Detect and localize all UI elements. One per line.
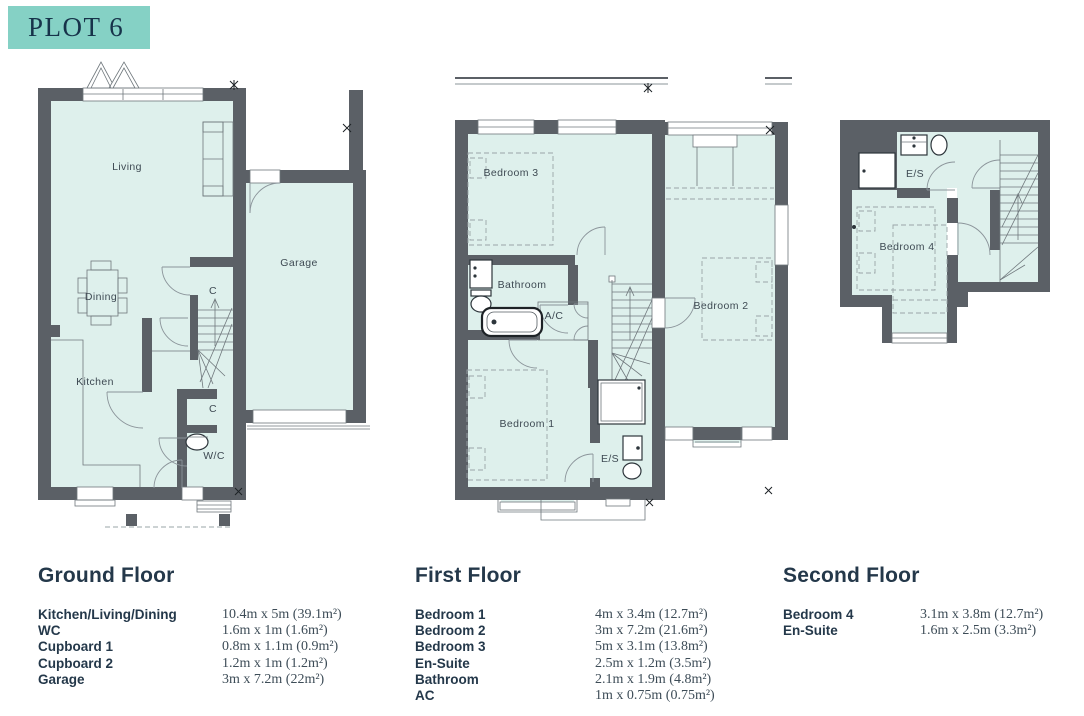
room-dimensions: 1.6m x 2.5m (3.3m²) xyxy=(920,623,1036,639)
room-name: Kitchen/Living/Dining xyxy=(38,607,222,623)
second-floor-title: Second Floor xyxy=(783,564,1043,588)
table-row: Garage3m x 7.2m (22m²) xyxy=(38,672,342,688)
label-bathroom: Bathroom xyxy=(498,279,547,291)
label-bedroom2: Bedroom 2 xyxy=(694,300,749,312)
table-row: En-Suite2.5m x 1.2m (3.5m²) xyxy=(415,656,715,672)
table-row: Bedroom 23m x 7.2m (21.6m²) xyxy=(415,623,715,639)
plot-title: PLOT 6 xyxy=(8,12,124,43)
room-dimensions: 4m x 3.4m (12.7m²) xyxy=(595,607,708,623)
label-living: Living xyxy=(112,161,142,173)
label-garage: Garage xyxy=(280,257,317,269)
table-row: Kitchen/Living/Dining10.4m x 5m (39.1m²) xyxy=(38,607,342,623)
room-name: Bedroom 3 xyxy=(415,639,595,655)
label-ensuite-first: E/S xyxy=(601,453,619,465)
label-bedroom1: Bedroom 1 xyxy=(500,418,555,430)
table-row: WC1.6m x 1m (1.6m²) xyxy=(38,623,342,639)
room-name: En-Suite xyxy=(783,623,920,639)
floorplan-second: E/S Bedroom 4 xyxy=(835,95,1060,375)
table-row: Bedroom 35m x 3.1m (13.8m²) xyxy=(415,639,715,655)
room-dimensions: 3m x 7.2m (22m²) xyxy=(222,672,324,688)
label-cupboard1: C xyxy=(209,285,217,297)
table-row: Bathroom2.1m x 1.9m (4.8m²) xyxy=(415,672,715,688)
room-name: Bedroom 1 xyxy=(415,607,595,623)
legend-second-floor: Second Floor Bedroom 43.1m x 3.8m (12.7m… xyxy=(783,564,1043,639)
second-floor-table: Bedroom 43.1m x 3.8m (12.7m²) En-Suite1.… xyxy=(783,607,1043,639)
room-name: Garage xyxy=(38,672,222,688)
room-name: Bedroom 4 xyxy=(783,607,920,623)
room-dimensions: 1.6m x 1m (1.6m²) xyxy=(222,623,328,639)
room-dimensions: 0.8m x 1.1m (0.9m²) xyxy=(222,639,338,655)
label-wc: W/C xyxy=(203,450,225,462)
table-row: Cupboard 10.8m x 1.1m (0.9m²) xyxy=(38,639,342,655)
label-dining: Dining xyxy=(85,291,117,303)
label-ac: A/C xyxy=(545,310,564,322)
first-floor-table: Bedroom 14m x 3.4m (12.7m²) Bedroom 23m … xyxy=(415,607,715,704)
room-name: En-Suite xyxy=(415,656,595,672)
room-name: Cupboard 2 xyxy=(38,656,222,672)
room-dimensions: 1m x 0.75m (0.75m²) xyxy=(595,688,715,704)
table-row: Bedroom 14m x 3.4m (12.7m²) xyxy=(415,607,715,623)
legend-ground-floor: Ground Floor Kitchen/Living/Dining10.4m … xyxy=(38,564,342,688)
label-cupboard2: C xyxy=(209,403,217,415)
room-dimensions: 2.5m x 1.2m (3.5m²) xyxy=(595,656,711,672)
floorplan-ground: Living Dining Kitchen C C W/C Garage xyxy=(25,58,375,548)
room-name: Cupboard 1 xyxy=(38,639,222,655)
table-row: Bedroom 43.1m x 3.8m (12.7m²) xyxy=(783,607,1043,623)
floorplan-sheet: PLOT 6 xyxy=(0,0,1084,716)
second-windows xyxy=(892,333,947,343)
room-dimensions: 3m x 7.2m (21.6m²) xyxy=(595,623,708,639)
table-row: Cupboard 21.2m x 1m (1.2m²) xyxy=(38,656,342,672)
floorplan-first: Bedroom 3 Bathroom A/C Bedroom 1 E/S Bed… xyxy=(440,58,800,533)
label-bedroom4: Bedroom 4 xyxy=(880,241,935,253)
room-name: AC xyxy=(415,688,595,704)
table-row: AC1m x 0.75m (0.75m²) xyxy=(415,688,715,704)
room-dimensions: 1.2m x 1m (1.2m²) xyxy=(222,656,328,672)
room-dimensions: 2.1m x 1.9m (4.8m²) xyxy=(595,672,711,688)
plot-title-badge: PLOT 6 xyxy=(8,6,150,49)
label-kitchen: Kitchen xyxy=(76,376,114,388)
label-ensuite-second: E/S xyxy=(906,168,924,180)
room-dimensions: 10.4m x 5m (39.1m²) xyxy=(222,607,342,623)
room-dimensions: 3.1m x 3.8m (12.7m²) xyxy=(920,607,1043,623)
room-name: Bedroom 2 xyxy=(415,623,595,639)
table-row: En-Suite1.6m x 2.5m (3.3m²) xyxy=(783,623,1043,639)
ground-floor-title: Ground Floor xyxy=(38,564,342,588)
first-roofline xyxy=(455,78,792,84)
room-dimensions: 5m x 3.1m (13.8m²) xyxy=(595,639,708,655)
ground-floor-table: Kitchen/Living/Dining10.4m x 5m (39.1m²)… xyxy=(38,607,342,688)
first-floor-title: First Floor xyxy=(415,564,715,588)
legend-first-floor: First Floor Bedroom 14m x 3.4m (12.7m²) … xyxy=(415,564,715,704)
label-bedroom3: Bedroom 3 xyxy=(484,167,539,179)
room-name: WC xyxy=(38,623,222,639)
room-name: Bathroom xyxy=(415,672,595,688)
